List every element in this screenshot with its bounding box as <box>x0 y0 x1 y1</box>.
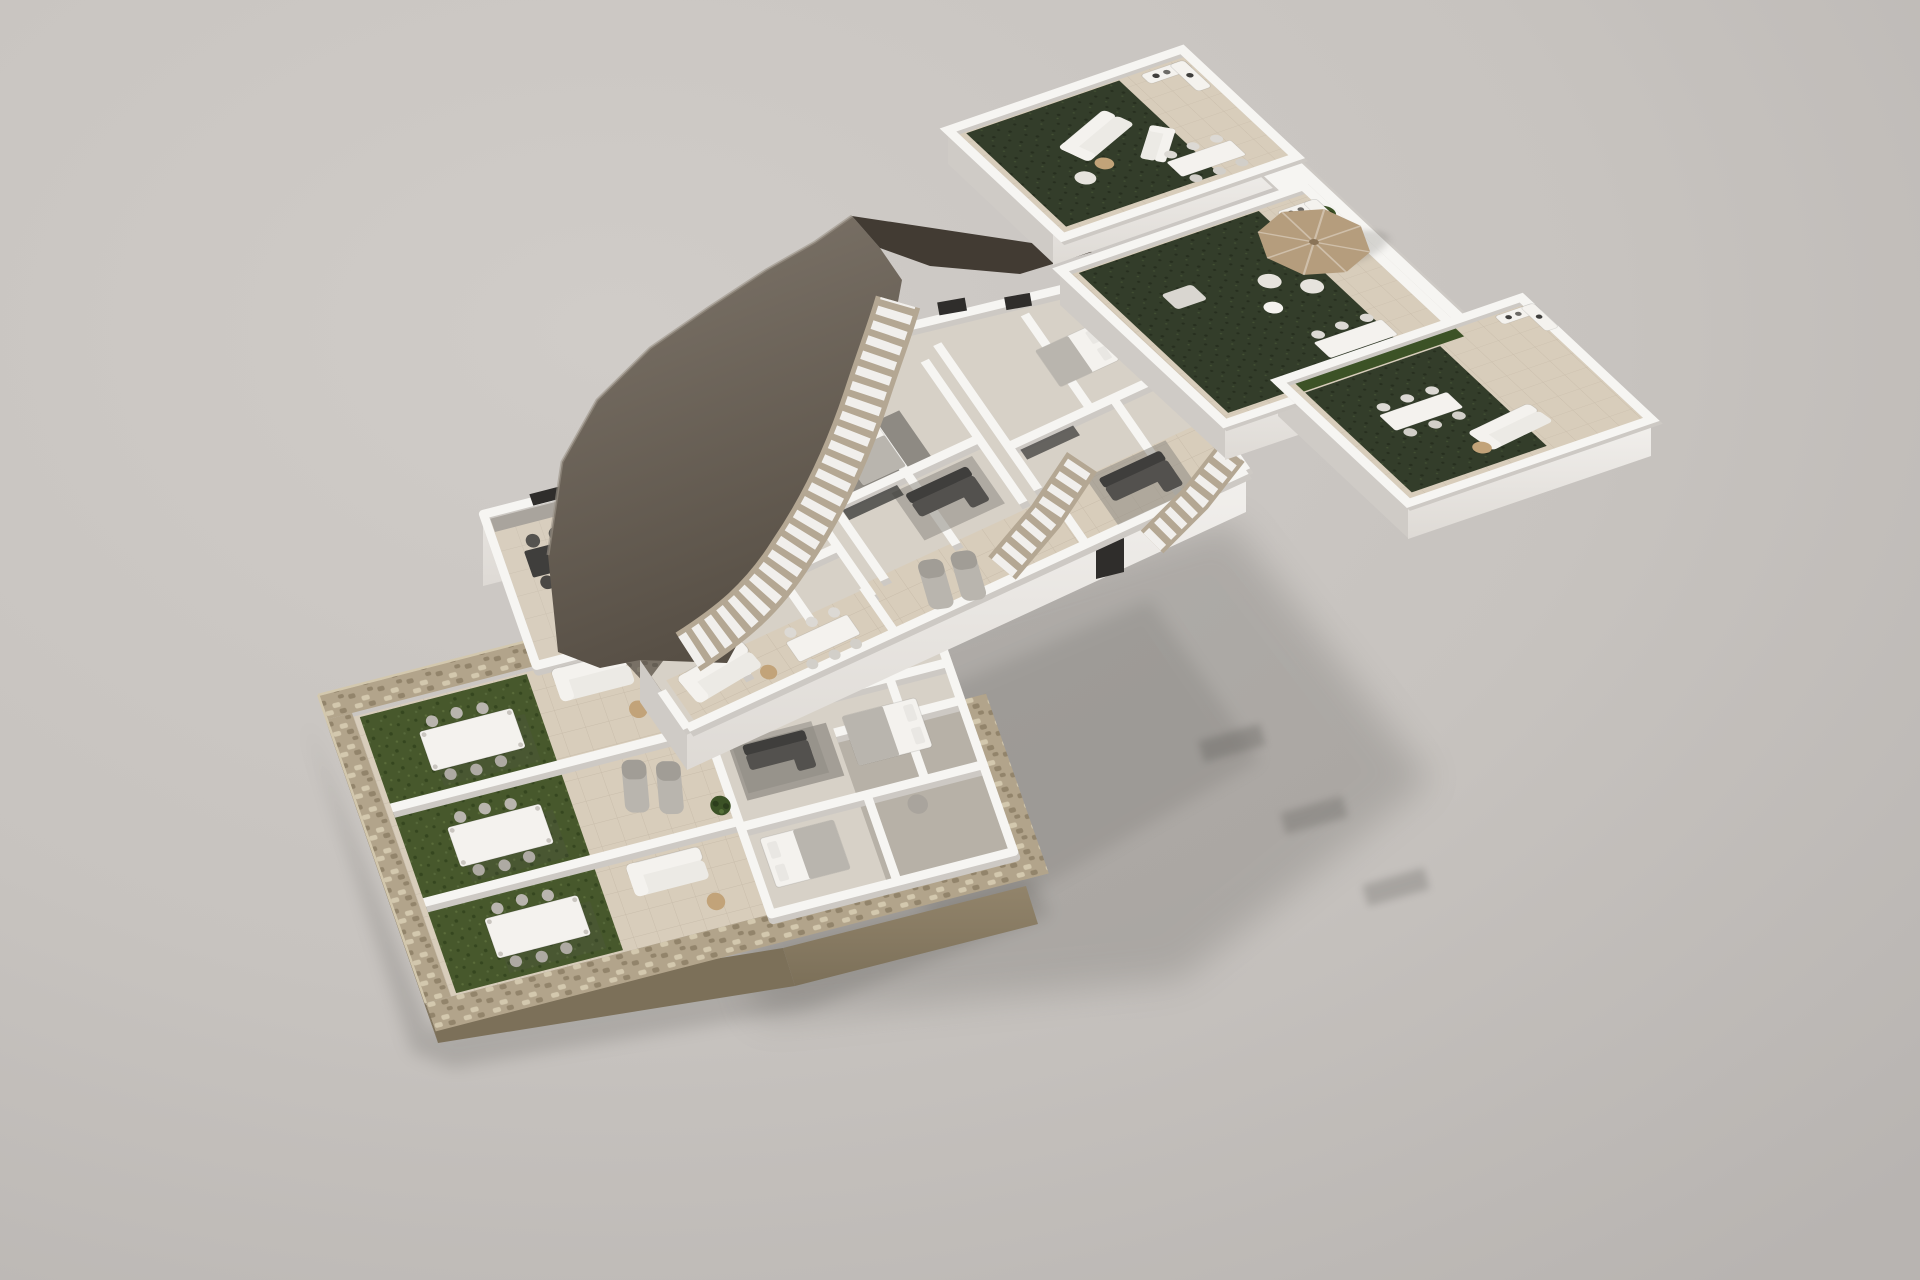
garden-lounger <box>621 760 650 813</box>
render-stage <box>0 0 1920 1280</box>
floorplan-render <box>0 0 1920 1280</box>
garden-lounger <box>655 761 684 814</box>
